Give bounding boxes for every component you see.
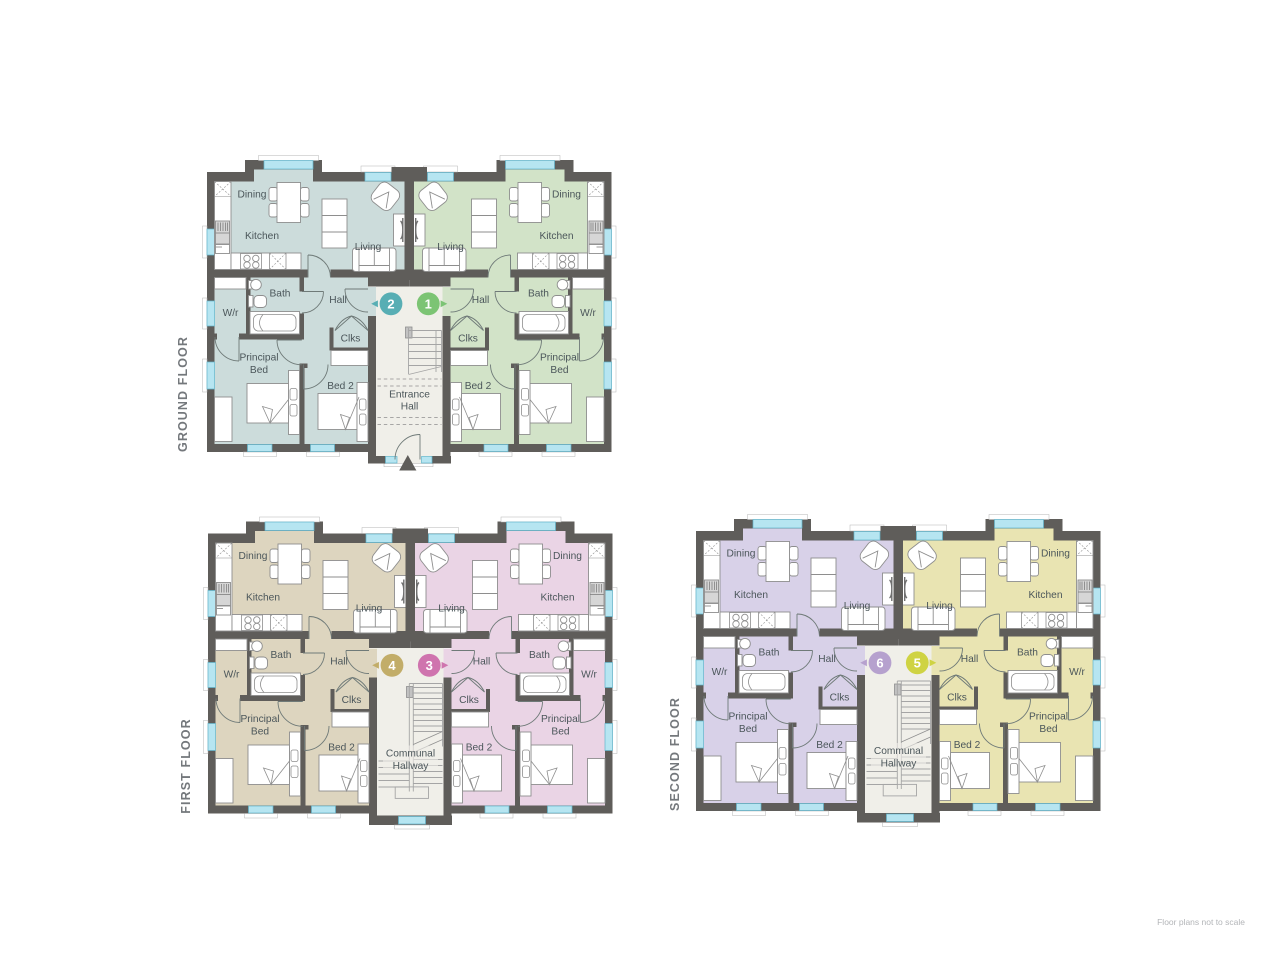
svg-text:Living: Living xyxy=(355,242,382,253)
svg-text:W/r: W/r xyxy=(223,308,239,319)
svg-text:Bed 2: Bed 2 xyxy=(954,740,981,751)
svg-text:Hallway: Hallway xyxy=(393,761,430,772)
svg-text:Bed: Bed xyxy=(1039,724,1057,735)
svg-text:Bath: Bath xyxy=(271,650,292,661)
svg-text:Living: Living xyxy=(438,604,465,615)
svg-text:Bed: Bed xyxy=(251,727,269,738)
svg-text:Dining: Dining xyxy=(238,190,267,201)
svg-text:Kitchen: Kitchen xyxy=(734,590,768,601)
svg-text:W/r: W/r xyxy=(580,308,596,319)
svg-text:Bed: Bed xyxy=(250,365,268,376)
svg-text:Hall: Hall xyxy=(472,295,490,306)
svg-text:Living: Living xyxy=(926,601,953,612)
svg-text:Bed: Bed xyxy=(551,727,569,738)
svg-text:Living: Living xyxy=(437,242,464,253)
svg-text:Bed 2: Bed 2 xyxy=(328,743,355,754)
svg-text:Floor plans not to scale: Floor plans not to scale xyxy=(1157,917,1245,927)
svg-text:Dining: Dining xyxy=(552,190,581,201)
svg-text:Principal: Principal xyxy=(541,714,580,725)
svg-text:2: 2 xyxy=(387,296,394,311)
svg-text:Hallway: Hallway xyxy=(881,759,918,770)
svg-text:Bath: Bath xyxy=(528,289,549,300)
svg-text:4: 4 xyxy=(388,658,396,673)
svg-text:Principal: Principal xyxy=(1029,712,1068,723)
svg-text:Communal: Communal xyxy=(874,746,923,757)
svg-text:Bath: Bath xyxy=(270,289,291,300)
svg-text:Bath: Bath xyxy=(1017,648,1038,659)
svg-text:Bed 2: Bed 2 xyxy=(327,381,354,392)
svg-text:Kitchen: Kitchen xyxy=(246,593,280,604)
svg-text:Principal: Principal xyxy=(240,714,279,725)
svg-text:Living: Living xyxy=(356,604,383,615)
svg-text:Kitchen: Kitchen xyxy=(245,231,279,242)
svg-text:Hall: Hall xyxy=(818,654,836,665)
svg-text:Communal: Communal xyxy=(386,749,435,760)
svg-text:SECOND FLOOR: SECOND FLOOR xyxy=(668,697,682,811)
svg-text:W/r: W/r xyxy=(712,667,728,678)
svg-text:Principal: Principal xyxy=(540,353,579,364)
svg-text:Hall: Hall xyxy=(473,657,491,668)
svg-text:1: 1 xyxy=(425,296,432,311)
svg-text:Kitchen: Kitchen xyxy=(540,231,574,242)
svg-text:Bed 2: Bed 2 xyxy=(816,740,843,751)
svg-text:W/r: W/r xyxy=(581,670,597,681)
svg-text:Clks: Clks xyxy=(947,693,967,704)
svg-text:Principal: Principal xyxy=(728,712,767,723)
svg-text:Living: Living xyxy=(844,601,871,612)
svg-text:GROUND FLOOR: GROUND FLOOR xyxy=(176,336,190,452)
svg-text:Bath: Bath xyxy=(529,650,550,661)
svg-text:W/r: W/r xyxy=(224,670,240,681)
svg-text:W/r: W/r xyxy=(1069,667,1085,678)
svg-text:Hall: Hall xyxy=(961,654,979,665)
svg-text:Entrance: Entrance xyxy=(389,390,430,401)
svg-text:Hall: Hall xyxy=(329,295,347,306)
svg-text:Kitchen: Kitchen xyxy=(1029,590,1063,601)
svg-text:Bed: Bed xyxy=(550,365,568,376)
svg-text:Dining: Dining xyxy=(239,551,268,562)
svg-text:5: 5 xyxy=(914,655,921,670)
svg-text:FIRST FLOOR: FIRST FLOOR xyxy=(179,718,193,813)
svg-text:Clks: Clks xyxy=(458,334,478,345)
svg-text:Dining: Dining xyxy=(553,551,582,562)
svg-text:6: 6 xyxy=(876,655,883,670)
svg-text:3: 3 xyxy=(426,658,433,673)
svg-text:Bed: Bed xyxy=(739,724,757,735)
svg-text:Clks: Clks xyxy=(341,334,361,345)
svg-text:Bed 2: Bed 2 xyxy=(466,743,493,754)
svg-text:Clks: Clks xyxy=(830,693,850,704)
svg-text:Hall: Hall xyxy=(401,402,419,413)
svg-text:Principal: Principal xyxy=(239,353,278,364)
svg-text:Kitchen: Kitchen xyxy=(541,593,575,604)
svg-text:Clks: Clks xyxy=(459,695,479,706)
svg-text:Hall: Hall xyxy=(330,657,348,668)
svg-text:Clks: Clks xyxy=(342,695,362,706)
svg-text:Bath: Bath xyxy=(759,648,780,659)
svg-text:Bed 2: Bed 2 xyxy=(465,381,492,392)
svg-text:Dining: Dining xyxy=(727,549,756,560)
svg-text:Dining: Dining xyxy=(1041,549,1070,560)
